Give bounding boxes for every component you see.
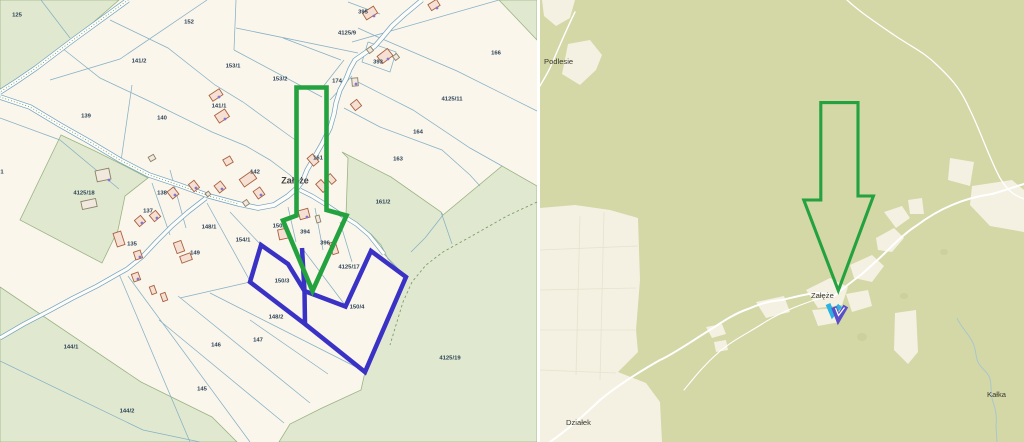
svg-text:Działek: Działek [566, 418, 591, 427]
svg-text:395: 395 [358, 10, 369, 16]
svg-text:4125/19: 4125/19 [439, 356, 461, 362]
svg-text:137: 137 [143, 209, 154, 215]
svg-text:166: 166 [491, 51, 502, 57]
svg-text:161: 161 [313, 156, 324, 162]
svg-text:152: 152 [184, 20, 195, 26]
svg-text:142: 142 [250, 170, 261, 176]
svg-text:Podlesie: Podlesie [544, 57, 573, 66]
svg-text:Załęże: Załęże [811, 291, 834, 300]
svg-text:147: 147 [253, 338, 264, 344]
svg-text:163: 163 [393, 157, 404, 163]
svg-text:154/1: 154/1 [236, 238, 251, 244]
svg-text:145: 145 [197, 387, 208, 393]
svg-text:140: 140 [157, 116, 168, 122]
svg-text:150/3: 150/3 [275, 279, 290, 285]
svg-text:150/4: 150/4 [350, 305, 365, 311]
svg-text:144/1: 144/1 [64, 345, 79, 351]
svg-text:Kałka: Kałka [987, 390, 1007, 399]
svg-text:139: 139 [81, 114, 92, 120]
svg-text:141/1: 141/1 [212, 104, 227, 110]
svg-text:4125/11: 4125/11 [442, 97, 464, 103]
svg-text:135: 135 [127, 242, 138, 248]
svg-text:4125/9: 4125/9 [338, 31, 357, 37]
svg-text:125: 125 [12, 13, 23, 19]
svg-text:141/2: 141/2 [132, 59, 147, 65]
svg-text:393: 393 [373, 60, 384, 66]
svg-text:4125/17: 4125/17 [338, 265, 360, 271]
svg-text:148/2: 148/2 [269, 315, 284, 321]
svg-text:149: 149 [190, 251, 201, 257]
svg-text:148/1: 148/1 [202, 225, 217, 231]
svg-text:153/2: 153/2 [273, 77, 288, 83]
svg-text:161/2: 161/2 [376, 200, 391, 206]
svg-text:153/1: 153/1 [226, 64, 241, 70]
svg-text:138: 138 [157, 191, 168, 197]
svg-text:396: 396 [320, 241, 331, 247]
svg-text:394: 394 [300, 230, 311, 236]
svg-text:144/2: 144/2 [120, 409, 135, 415]
svg-text:174: 174 [332, 79, 343, 85]
svg-text:164: 164 [413, 130, 424, 136]
svg-text:146: 146 [211, 343, 222, 349]
svg-text:4125/18: 4125/18 [73, 191, 95, 197]
